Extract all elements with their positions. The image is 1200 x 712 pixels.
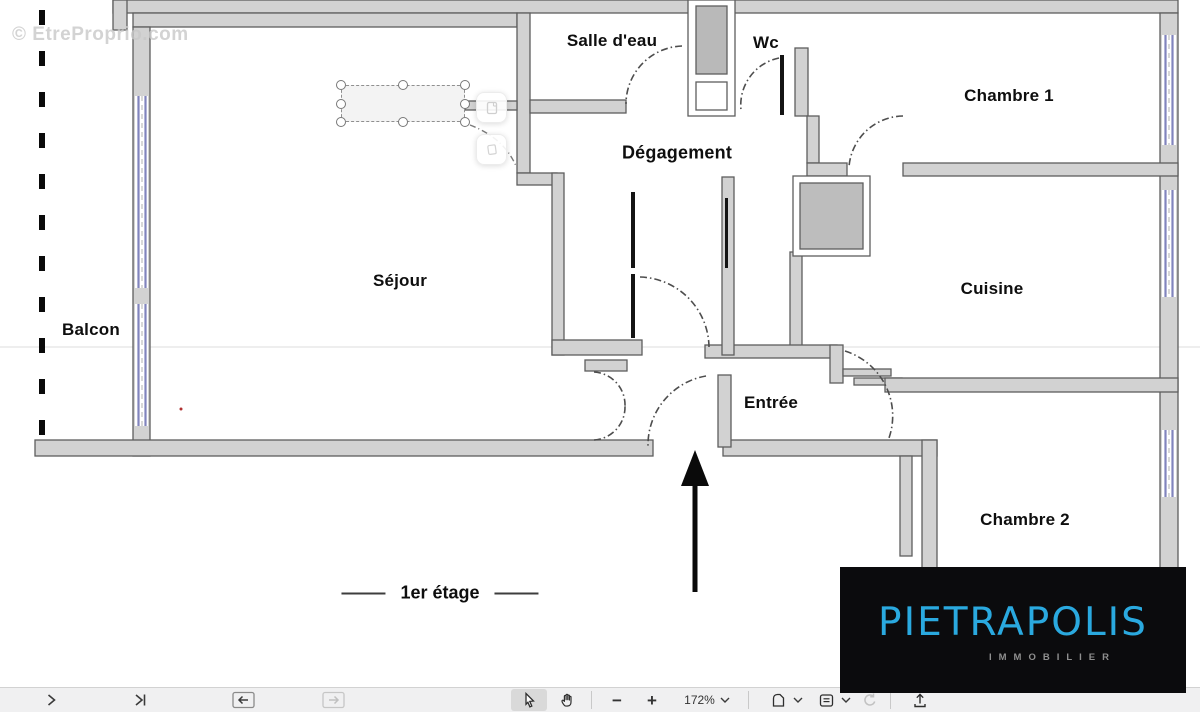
next-page-button[interactable] — [40, 689, 62, 711]
selection-handle[interactable] — [398, 117, 408, 127]
next-view-button[interactable] — [318, 689, 348, 711]
room-label-wc: Wc — [753, 33, 779, 53]
chevron-right-bar-icon — [133, 693, 149, 707]
floor-label-text: 1er étage — [400, 583, 479, 604]
floor-label: 1er étage — [341, 583, 538, 604]
toolbar-separator — [591, 691, 592, 709]
room-label-salle-deau: Salle d'eau — [567, 31, 657, 51]
zoom-level-value: 172% — [684, 693, 715, 707]
agency-logo-brand: PIETRAPOLIS — [840, 600, 1186, 645]
last-page-button[interactable] — [128, 689, 154, 711]
stray-dot — [180, 408, 183, 411]
room-label-entree: Entrée — [744, 393, 798, 413]
select-tool-button[interactable] — [511, 689, 547, 711]
entry-arrow — [681, 450, 709, 592]
selection-handle[interactable] — [336, 117, 346, 127]
annotation-selection[interactable] — [341, 85, 465, 122]
selection-handle[interactable] — [336, 80, 346, 90]
rotate-icon — [861, 692, 878, 708]
chevron-down-icon — [841, 697, 851, 703]
hand-tool-button[interactable] — [554, 689, 580, 711]
document-icon — [484, 100, 500, 116]
selection-handle[interactable] — [398, 80, 408, 90]
selection-handle[interactable] — [460, 80, 470, 90]
annotation-action-button[interactable] — [476, 134, 507, 165]
minus-icon: − — [612, 692, 622, 709]
fit-page-dropdown[interactable] — [764, 689, 808, 711]
page-display-icon — [818, 692, 835, 709]
agency-logo-tagline: IMMOBILIER — [840, 652, 1186, 663]
copy-icon — [484, 142, 499, 157]
chevron-right-icon — [45, 693, 58, 707]
zoom-out-button[interactable]: − — [604, 689, 630, 711]
floor-label-dash-right — [495, 592, 539, 594]
chevron-down-icon — [793, 697, 803, 703]
room-label-sejour: Séjour — [373, 271, 427, 291]
toolbar-separator — [890, 691, 891, 709]
zoom-in-button[interactable]: + — [639, 689, 665, 711]
boxed-arrow-right-icon — [322, 691, 345, 709]
watermark: © EtreProprio.com — [12, 24, 189, 46]
selection-handle[interactable] — [460, 99, 470, 109]
chevron-down-icon — [720, 697, 730, 703]
room-label-balcon: Balcon — [62, 320, 120, 340]
room-label-chambre2: Chambre 2 — [980, 510, 1070, 530]
hand-icon — [559, 692, 575, 708]
agency-logo: PIETRAPOLIS IMMOBILIER — [840, 567, 1186, 693]
toolbar-separator — [748, 691, 749, 709]
floor-label-dash-left — [341, 592, 385, 594]
duct-shafts — [688, 0, 870, 256]
previous-view-button[interactable] — [228, 689, 258, 711]
zoom-level-dropdown[interactable]: 172% — [676, 689, 738, 711]
boxed-arrow-left-icon — [232, 691, 255, 709]
upload-icon — [912, 692, 928, 709]
plus-icon: + — [647, 692, 657, 709]
page-canvas: © EtreProprio.com Salle d'eau Wc Chambre… — [0, 0, 1200, 712]
annotation-action-button[interactable] — [476, 92, 507, 123]
cursor-icon — [522, 692, 537, 709]
room-label-cuisine: Cuisine — [961, 279, 1024, 299]
selection-handle[interactable] — [336, 99, 346, 109]
room-label-degagement: Dégagement — [622, 143, 732, 164]
room-label-chambre1: Chambre 1 — [964, 86, 1054, 106]
fit-page-icon — [770, 692, 787, 709]
selection-handle[interactable] — [460, 117, 470, 127]
